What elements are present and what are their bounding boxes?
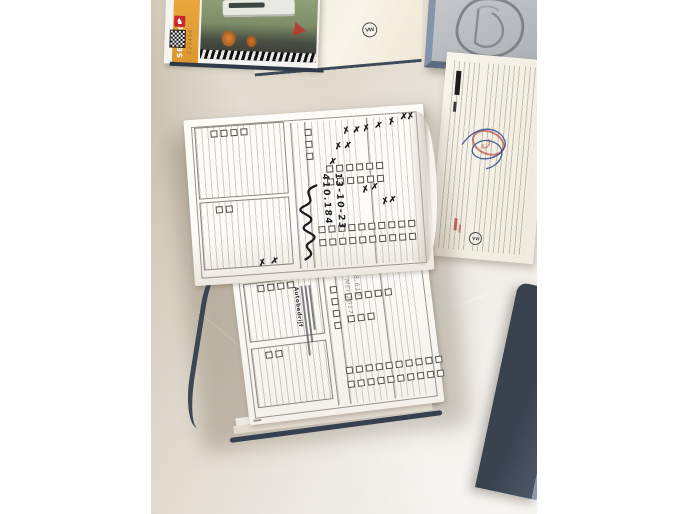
van-window <box>228 3 264 9</box>
van-illustration <box>222 0 294 18</box>
checkbox <box>346 367 354 375</box>
pen-x-mark: ✗ <box>328 158 337 168</box>
red-emblem-icon: ♞ <box>174 16 185 27</box>
pen-x-mark: ✗ <box>361 124 370 134</box>
pen-x-mark: ✗ <box>388 195 396 205</box>
checkbox <box>425 357 433 365</box>
checkbox <box>357 313 365 321</box>
checkbox <box>397 374 405 382</box>
checkbox <box>415 358 423 366</box>
pen-x-mark: ✗ <box>371 184 379 193</box>
service-page-upper: 410.184 13-10-23 ✗✗✗✗✗✗✗✗✗✗✗✗✗✗✗✗ <box>184 104 435 286</box>
pen-x-mark: ✗ <box>387 117 397 128</box>
pen-x-mark: ✗ <box>361 185 371 196</box>
checkbox <box>437 369 445 377</box>
checkbox <box>427 371 435 379</box>
checkbox <box>377 377 385 385</box>
pen-x-mark: ✗ <box>270 257 279 267</box>
pen-x-mark: ✗ <box>344 142 352 152</box>
stamp-and-signature <box>455 110 520 177</box>
checkbox <box>367 312 375 320</box>
checkbox <box>364 291 372 299</box>
checkbox <box>435 356 443 364</box>
cover-photo <box>200 0 318 63</box>
checkbox <box>276 282 284 290</box>
checkbox <box>356 366 364 374</box>
checkbox <box>374 290 382 298</box>
checkbox <box>357 379 365 387</box>
checkbox <box>275 350 283 358</box>
checkbox <box>384 289 392 297</box>
qr-code-icon <box>169 29 186 48</box>
booklet-edge <box>170 62 324 73</box>
checkbox <box>365 364 373 372</box>
pen-x-mark: ✗ <box>373 121 382 131</box>
checkbox <box>266 283 274 291</box>
checkbox <box>395 361 403 369</box>
pen-check-marks: ✗✗✗✗✗✗✗✗✗✗✗✗✗✗✗✗ <box>184 104 435 286</box>
pen-x-mark: ✗ <box>352 127 360 137</box>
checkbox <box>375 363 383 371</box>
vw-logo-icon: VW <box>362 22 378 38</box>
checkbox <box>407 373 415 381</box>
figure-blob <box>247 35 257 47</box>
checkbox <box>256 284 264 292</box>
page-footer-mark <box>253 419 261 422</box>
photo-frame: { "scene": { "description": "Top-down ph… <box>0 0 685 514</box>
stripe-pattern <box>200 50 316 63</box>
checkbox <box>265 351 273 359</box>
checkbox <box>347 315 355 323</box>
pen-x-mark: ✗ <box>342 127 352 138</box>
figure-blob <box>221 30 236 46</box>
checkbox <box>417 372 425 380</box>
checkbox <box>367 378 375 386</box>
photograph: VW SERVICE C23456 ♞ <box>151 0 537 514</box>
warning-triangle-icon <box>293 22 308 38</box>
checkbox <box>405 360 413 368</box>
pen-x-mark: ✗ <box>258 259 267 269</box>
checkbox <box>347 380 355 388</box>
pen-x-mark: ✗ <box>334 142 343 152</box>
checkbox <box>385 362 393 370</box>
dark-blue-folder <box>475 282 537 501</box>
orange-service-booklet: SERVICE C23456 ♞ <box>164 0 320 69</box>
checkbox <box>387 376 395 384</box>
